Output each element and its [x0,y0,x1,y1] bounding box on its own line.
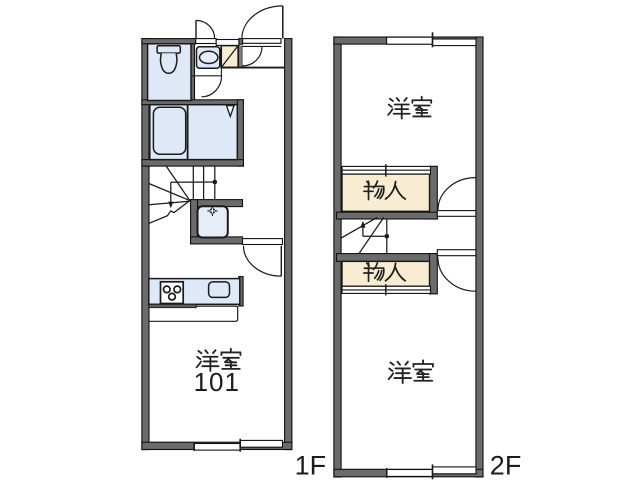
svg-text:101: 101 [194,367,240,397]
svg-text:2F: 2F [490,451,522,481]
svg-text:1F: 1F [295,451,327,481]
